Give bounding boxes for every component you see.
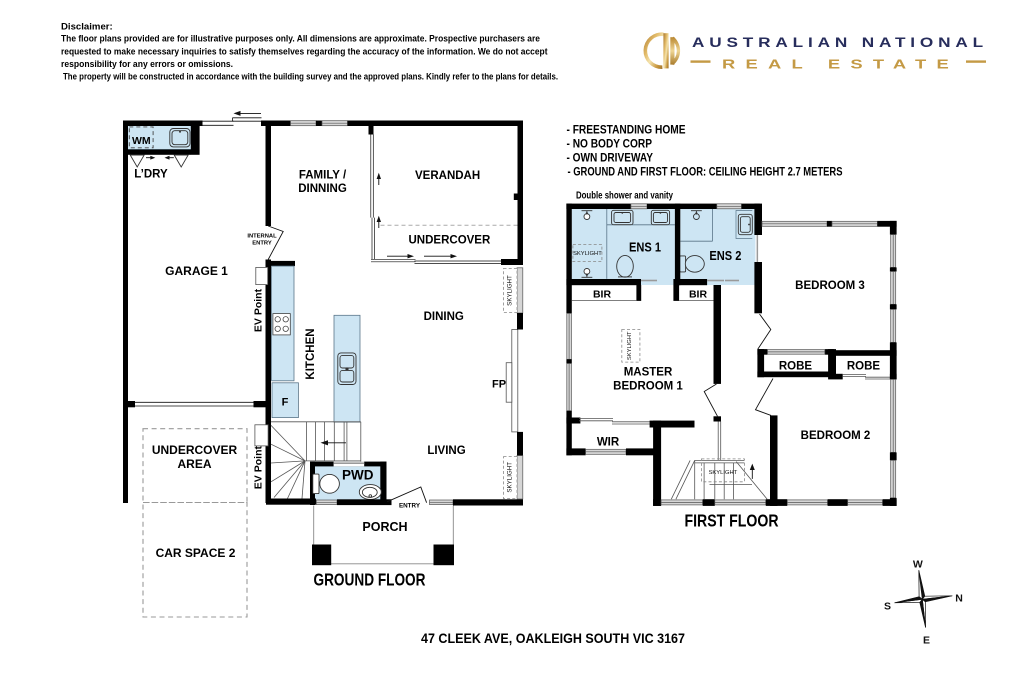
svg-text:UNDERCOVER: UNDERCOVER [409, 235, 491, 247]
svg-text:Double shower and vanity: Double shower and vanity [576, 190, 673, 201]
svg-text:SKYLIGHT: SKYLIGHT [507, 275, 514, 306]
svg-text:SKYLIGHT: SKYLIGHT [573, 251, 602, 257]
svg-text:Disclaimer:: Disclaimer: [61, 22, 113, 33]
svg-text:DINNING: DINNING [298, 183, 347, 195]
svg-text:FP: FP [492, 378, 506, 390]
svg-text:GROUND FLOOR: GROUND FLOOR [314, 570, 426, 590]
svg-text:VERANDAH: VERANDAH [415, 170, 480, 182]
svg-text:ROBE: ROBE [779, 360, 813, 372]
svg-text:- NO BODY CORP: - NO BODY CORP [567, 136, 653, 150]
svg-text:N: N [955, 593, 963, 605]
svg-text:WM: WM [132, 135, 151, 147]
svg-text:EV Point: EV Point [253, 446, 265, 490]
svg-text:BEDROOM 2: BEDROOM 2 [801, 430, 871, 442]
svg-text:SKYLIGHT: SKYLIGHT [627, 331, 633, 360]
svg-text:CAR SPACE 2: CAR SPACE 2 [156, 546, 236, 560]
svg-text:- OWN DRIVEWAY: - OWN DRIVEWAY [567, 150, 654, 164]
svg-text:FAMILY /: FAMILY / [299, 170, 347, 182]
svg-text:KITCHEN: KITCHEN [305, 328, 317, 379]
svg-text:F: F [282, 396, 289, 408]
svg-text:PWD: PWD [342, 467, 374, 482]
svg-text:ENTRY: ENTRY [399, 502, 421, 509]
svg-text:L’DRY: L’DRY [134, 169, 168, 181]
svg-text:BEDROOM 1: BEDROOM 1 [613, 381, 683, 393]
svg-text:BIR: BIR [593, 288, 612, 300]
svg-text:ENTRY: ENTRY [252, 241, 272, 247]
svg-text:ENS 1: ENS 1 [629, 241, 661, 255]
svg-text:MASTER: MASTER [624, 367, 673, 379]
svg-text:The property will be construct: The property will be constructed in acco… [63, 72, 558, 83]
svg-text:S: S [884, 601, 891, 613]
svg-text:FIRST FLOOR: FIRST FLOOR [685, 511, 779, 531]
svg-text:ENS 2: ENS 2 [709, 249, 741, 263]
svg-text:EV Point: EV Point [253, 288, 265, 332]
svg-text:GARAGE 1: GARAGE 1 [165, 264, 228, 278]
svg-text:WIR: WIR [597, 436, 620, 448]
svg-text:UNDERCOVER: UNDERCOVER [152, 443, 238, 457]
svg-text:LIVING: LIVING [427, 445, 465, 457]
svg-text:AUSTRALIAN NATIONAL: AUSTRALIAN NATIONAL [692, 35, 988, 51]
svg-text:47 CLEEK AVE, OAKLEIGH SOUTH V: 47 CLEEK AVE, OAKLEIGH SOUTH VIC 3167 [421, 631, 685, 646]
svg-text:AREA: AREA [177, 457, 211, 471]
svg-text:requested to make necessary in: requested to make necessary inquiries to… [61, 46, 548, 57]
svg-text:- FREESTANDING HOME: - FREESTANDING HOME [567, 123, 686, 137]
svg-text:SKYLIGHT: SKYLIGHT [507, 462, 514, 493]
svg-text:E: E [923, 635, 930, 647]
svg-text:INTERNAL: INTERNAL [247, 234, 277, 240]
svg-text:The floor plans provided are f: The floor plans provided are for illustr… [61, 34, 540, 45]
svg-text:PORCH: PORCH [362, 520, 407, 534]
svg-text:responsibility for any errors: responsibility for any errors or omissio… [61, 59, 233, 70]
svg-text:BEDROOM 3: BEDROOM 3 [795, 280, 865, 292]
svg-text:BIR: BIR [689, 288, 708, 300]
svg-text:REAL ESTATE: REAL ESTATE [722, 57, 959, 71]
svg-text:W: W [913, 559, 923, 571]
svg-text:ROBE: ROBE [847, 360, 881, 372]
svg-text:SKYLIGHT: SKYLIGHT [709, 470, 738, 476]
svg-text:DINING: DINING [424, 311, 464, 323]
svg-text:- GROUND AND FIRST FLOOR: CEIL: - GROUND AND FIRST FLOOR: CEILING HEIGHT… [568, 164, 843, 178]
